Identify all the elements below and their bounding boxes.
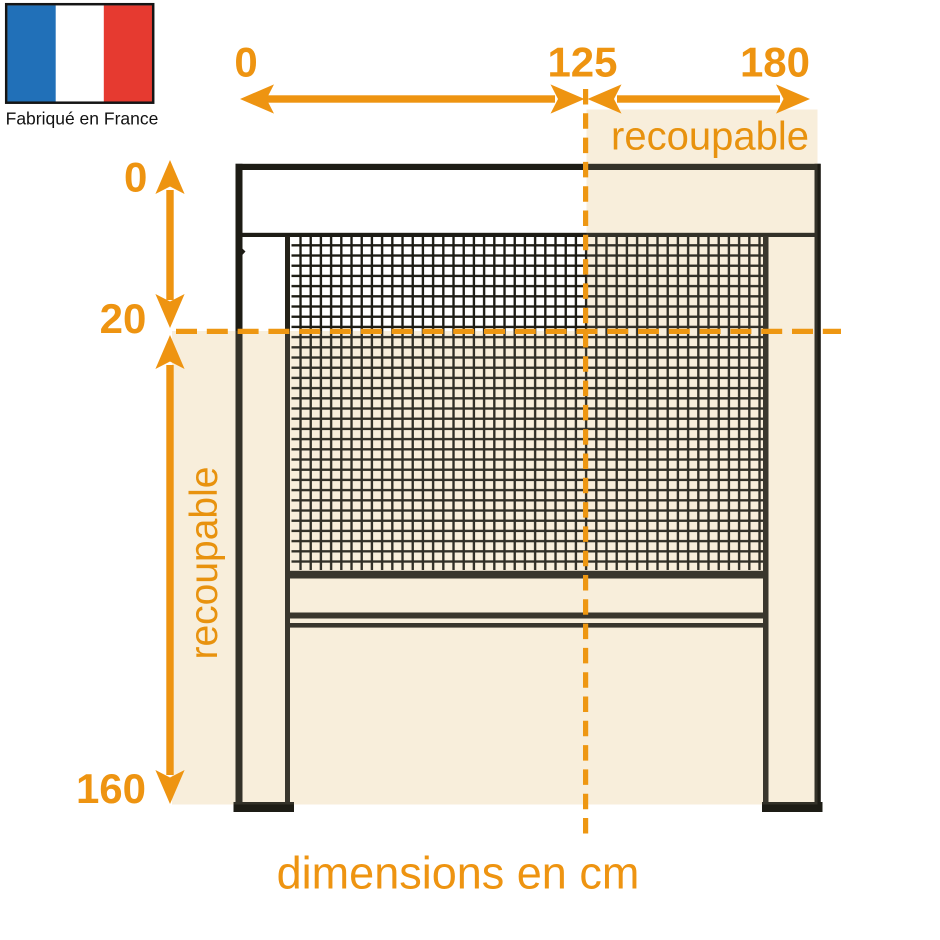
svg-text:dimensions en cm: dimensions en cm	[277, 848, 640, 899]
svg-text:Fabriqué en France: Fabriqué en France	[6, 109, 159, 129]
svg-text:0: 0	[234, 39, 257, 86]
svg-text:recoupable: recoupable	[611, 115, 809, 159]
svg-text:0: 0	[124, 154, 147, 201]
svg-text:20: 20	[100, 295, 147, 342]
svg-text:180: 180	[740, 39, 810, 86]
svg-text:160: 160	[76, 765, 146, 812]
svg-text:125: 125	[547, 39, 617, 86]
svg-text:recoupable: recoupable	[183, 467, 226, 660]
